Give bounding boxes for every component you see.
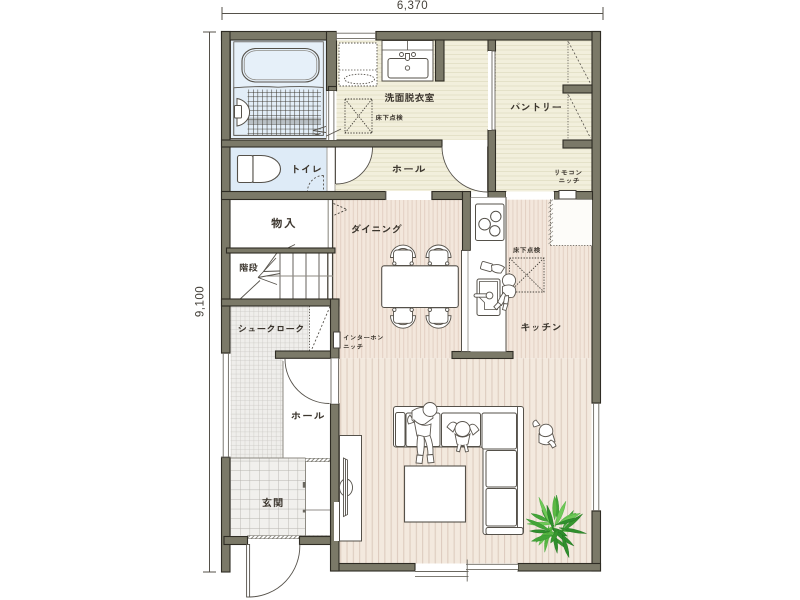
svg-text:9,100: 9,100 <box>195 286 207 317</box>
svg-text:6,370: 6,370 <box>397 0 428 12</box>
